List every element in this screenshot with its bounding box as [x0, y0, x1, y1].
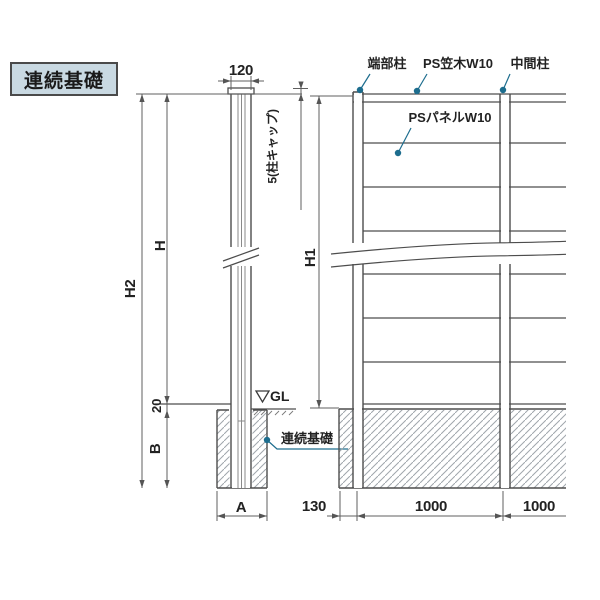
side-foundation-callout: 連続基礎 [281, 432, 333, 446]
panel-callout: PSパネルW10 [406, 111, 494, 125]
end-post-callout: 端部柱 [362, 57, 412, 71]
dim-b-label: B [148, 434, 164, 464]
foundation-drawing: 連続基礎 120 5(柱キャップ) H H2 20 B GL A 連続基礎 端部… [0, 0, 600, 600]
dim-h1-label: H1 [303, 241, 319, 275]
dim-130-label: 130 [299, 499, 329, 515]
dim-120-label: 120 [221, 63, 261, 79]
title-text: 連続基礎 [24, 66, 104, 93]
side-break-symbol [223, 247, 259, 268]
gl-triangle-icon [256, 391, 269, 402]
gl-label: GL [270, 389, 289, 404]
post-cap [228, 88, 254, 94]
dim-20-label: 20 [150, 391, 164, 421]
cap-rail-callout: PS笠木W10 [420, 57, 496, 71]
elevation-foundation [339, 409, 566, 488]
elevation-end-post [353, 92, 363, 488]
dim-h-label: H [153, 231, 169, 261]
elevation-view [310, 74, 567, 521]
elevation-mid-post [500, 94, 510, 488]
side-view [136, 76, 348, 521]
mid-post-callout: 中間柱 [505, 57, 555, 71]
dim-h2-label: H2 [123, 272, 139, 306]
title-badge: 連続基礎 [10, 62, 118, 96]
dim-1000-right-label: 1000 [519, 499, 559, 515]
dim-a-label: A [226, 500, 256, 516]
elevation-break-symbol [331, 241, 567, 267]
cap-note-label: 5(柱キャップ) [267, 105, 280, 187]
dim-1000-left-label: 1000 [411, 499, 451, 515]
